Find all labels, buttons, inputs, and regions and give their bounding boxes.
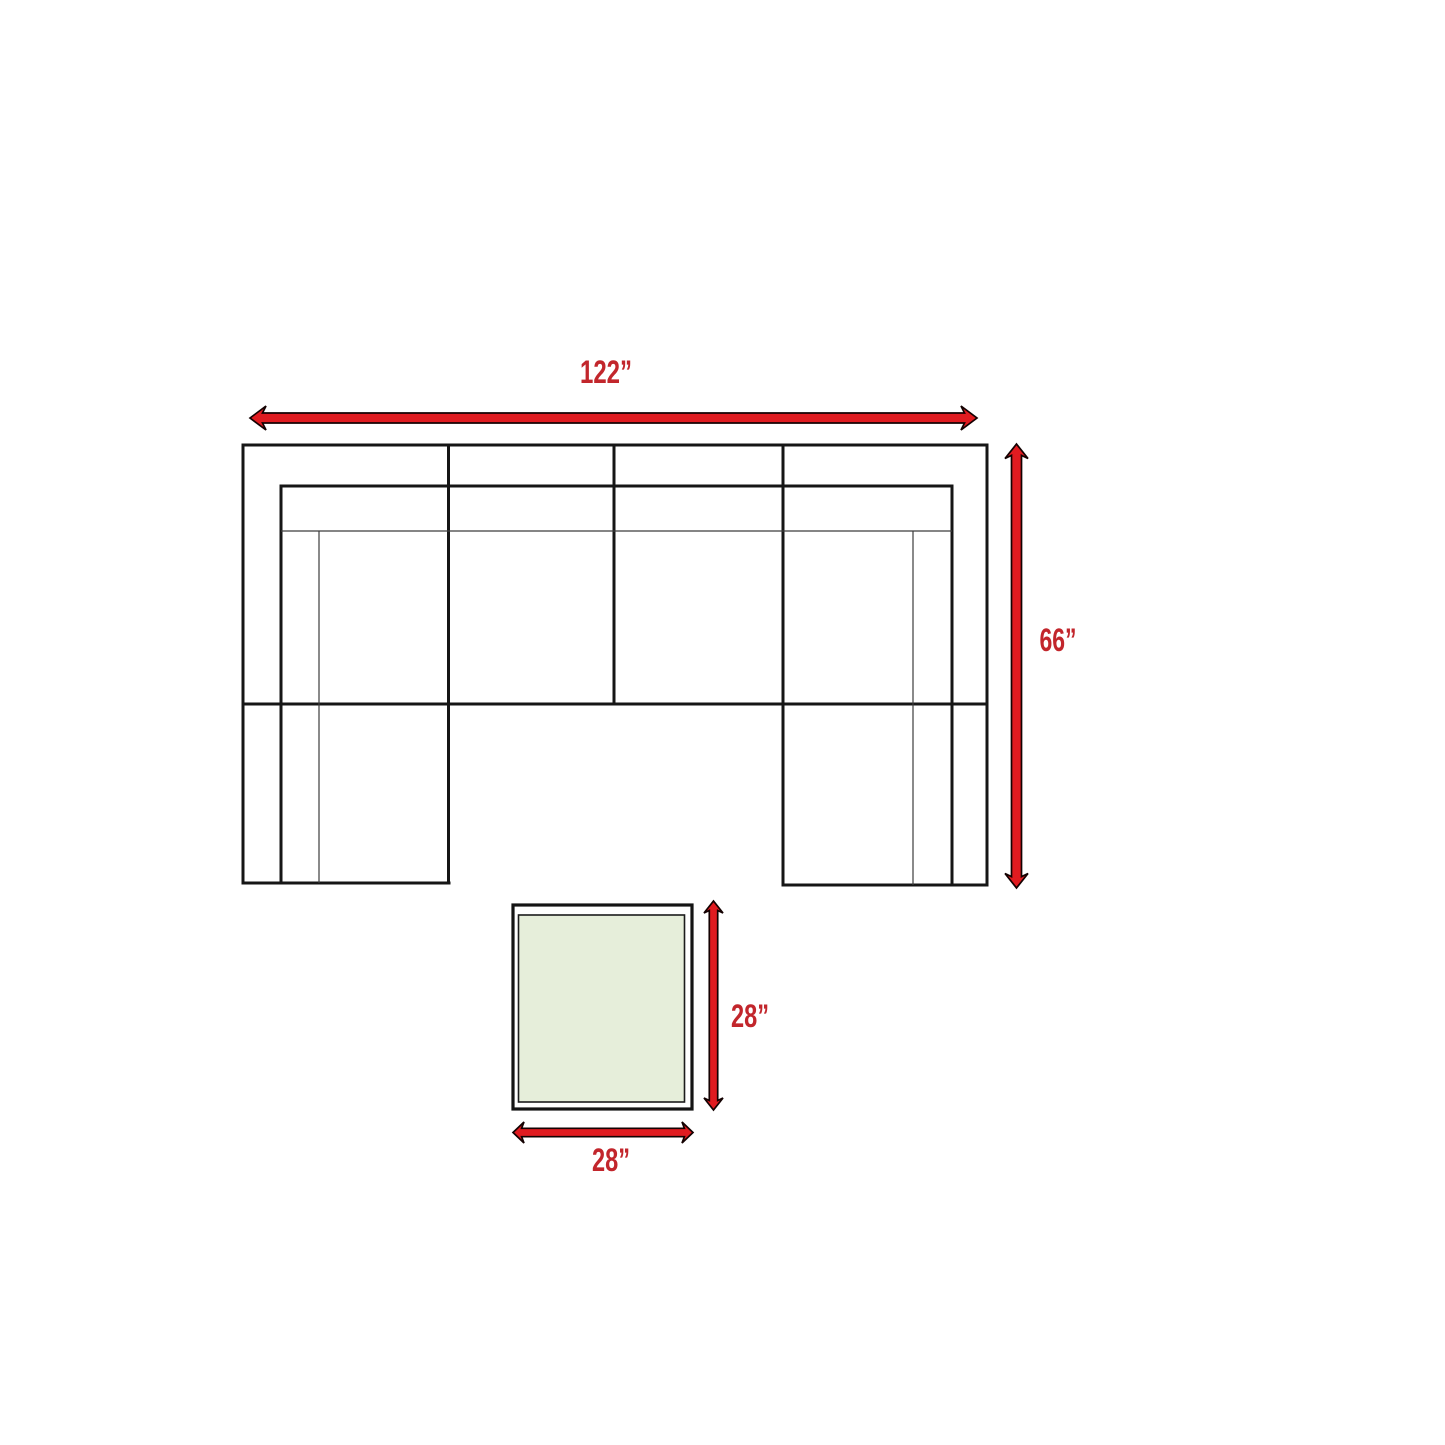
svg-text:28”: 28” — [731, 998, 769, 1034]
svg-text:122”: 122” — [580, 354, 632, 390]
svg-text:66”: 66” — [1040, 622, 1077, 658]
svg-text:28”: 28” — [592, 1142, 630, 1178]
